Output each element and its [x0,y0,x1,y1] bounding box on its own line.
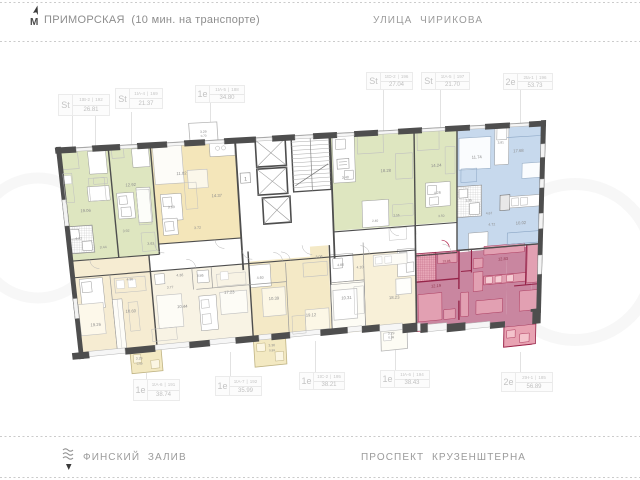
svg-text:M: M [30,17,38,28]
